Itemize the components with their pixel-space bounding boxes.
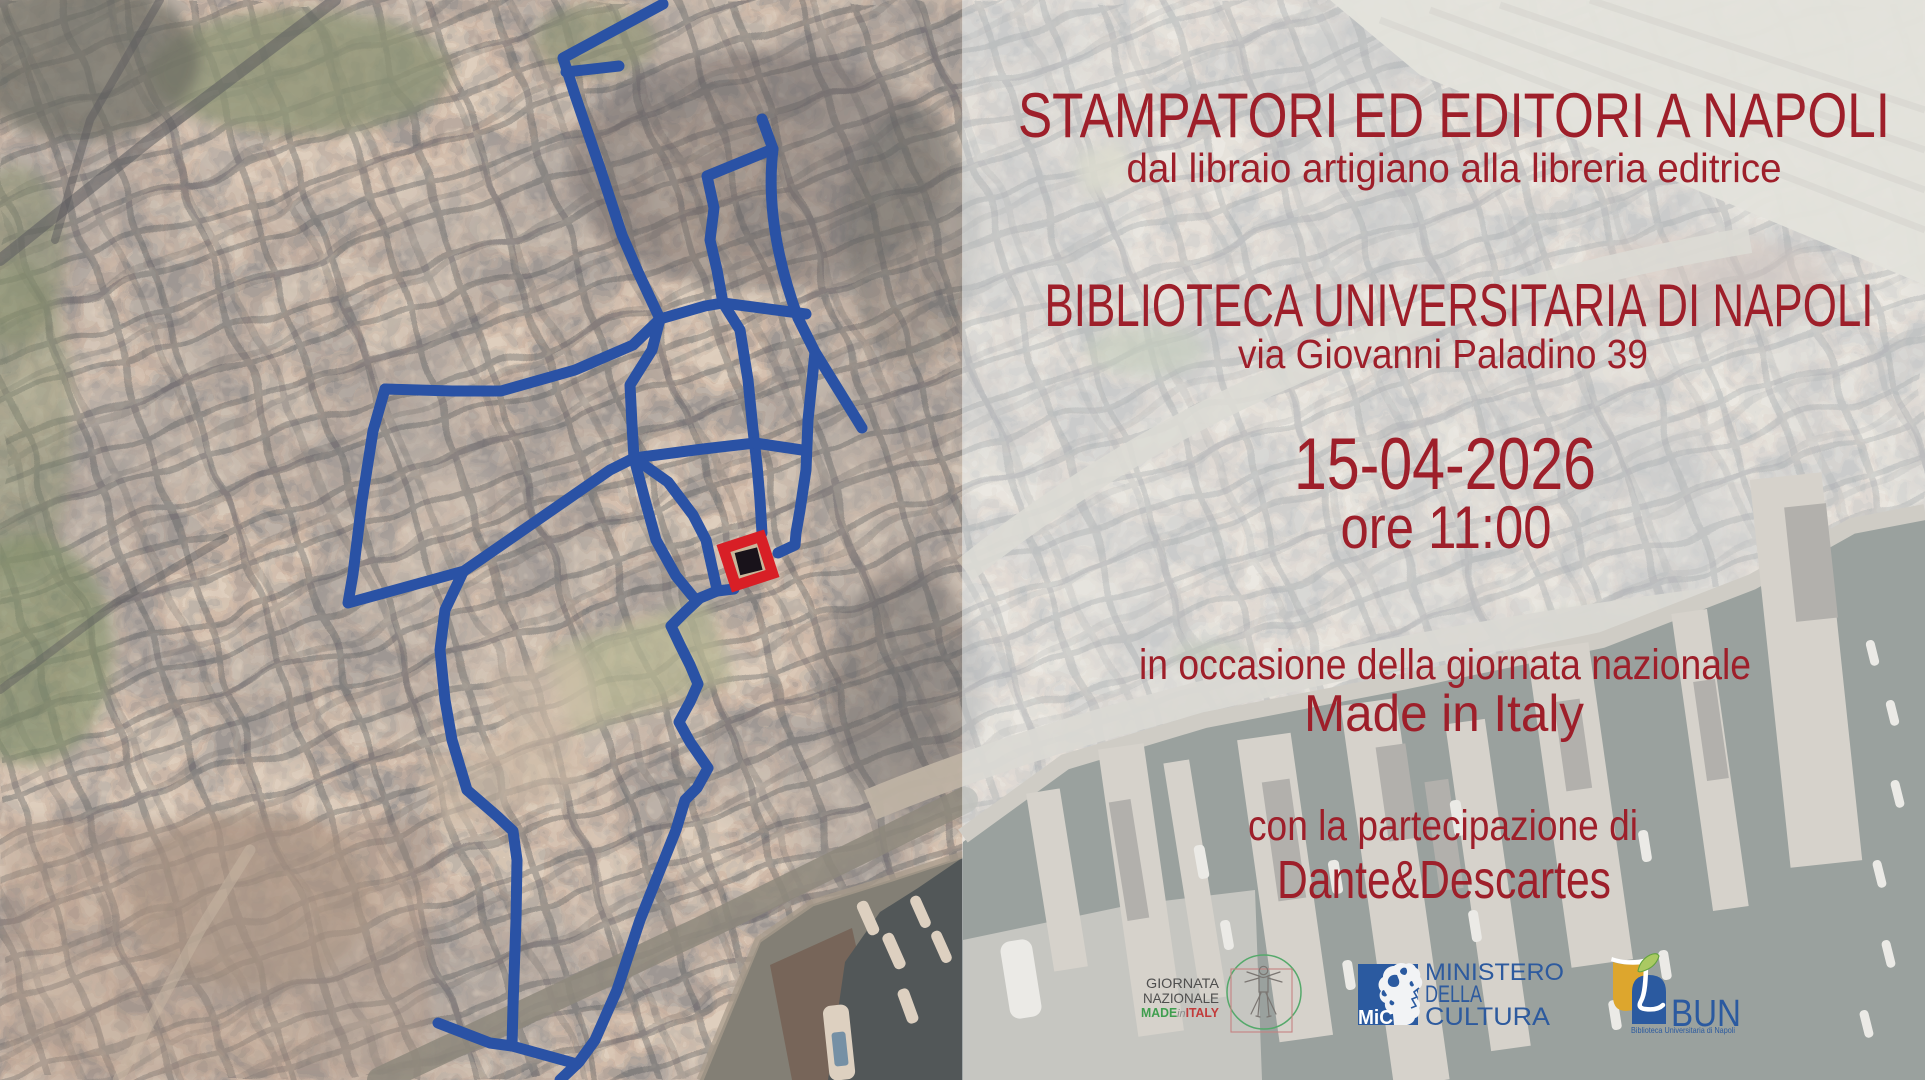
svg-text:GIORNATA: GIORNATA xyxy=(1146,975,1220,991)
svg-text:STAMPATORI ED EDITORI A NAPOLI: STAMPATORI ED EDITORI A NAPOLI xyxy=(1018,81,1890,151)
svg-text:15-04-2026: 15-04-2026 xyxy=(1294,424,1596,505)
svg-text:in occasione della giornata na: in occasione della giornata nazionale xyxy=(1139,641,1751,689)
svg-text:NAZIONALE: NAZIONALE xyxy=(1143,990,1219,1006)
svg-text:Biblioteca Universitaria di Na: Biblioteca Universitaria di Napoli xyxy=(1631,1025,1735,1035)
svg-text:BIBLIOTECA UNIVERSITARIA DI NA: BIBLIOTECA UNIVERSITARIA DI NAPOLI xyxy=(1045,272,1874,339)
svg-text:Made in Italy: Made in Italy xyxy=(1304,685,1584,743)
svg-text:Dante&Descartes: Dante&Descartes xyxy=(1277,850,1611,910)
svg-text:MADEinITALY: MADEinITALY xyxy=(1141,1006,1220,1020)
svg-text:dal libraio artigiano alla lib: dal libraio artigiano alla libreria edit… xyxy=(1127,145,1782,191)
svg-text:con la partecipazione di: con la partecipazione di xyxy=(1248,802,1638,850)
svg-text:CULTURA: CULTURA xyxy=(1425,1003,1550,1031)
svg-text:ore 11:00: ore 11:00 xyxy=(1341,494,1552,561)
svg-text:via Giovanni Paladino 39: via Giovanni Paladino 39 xyxy=(1238,331,1648,377)
svg-text:MiC: MiC xyxy=(1358,1007,1393,1029)
